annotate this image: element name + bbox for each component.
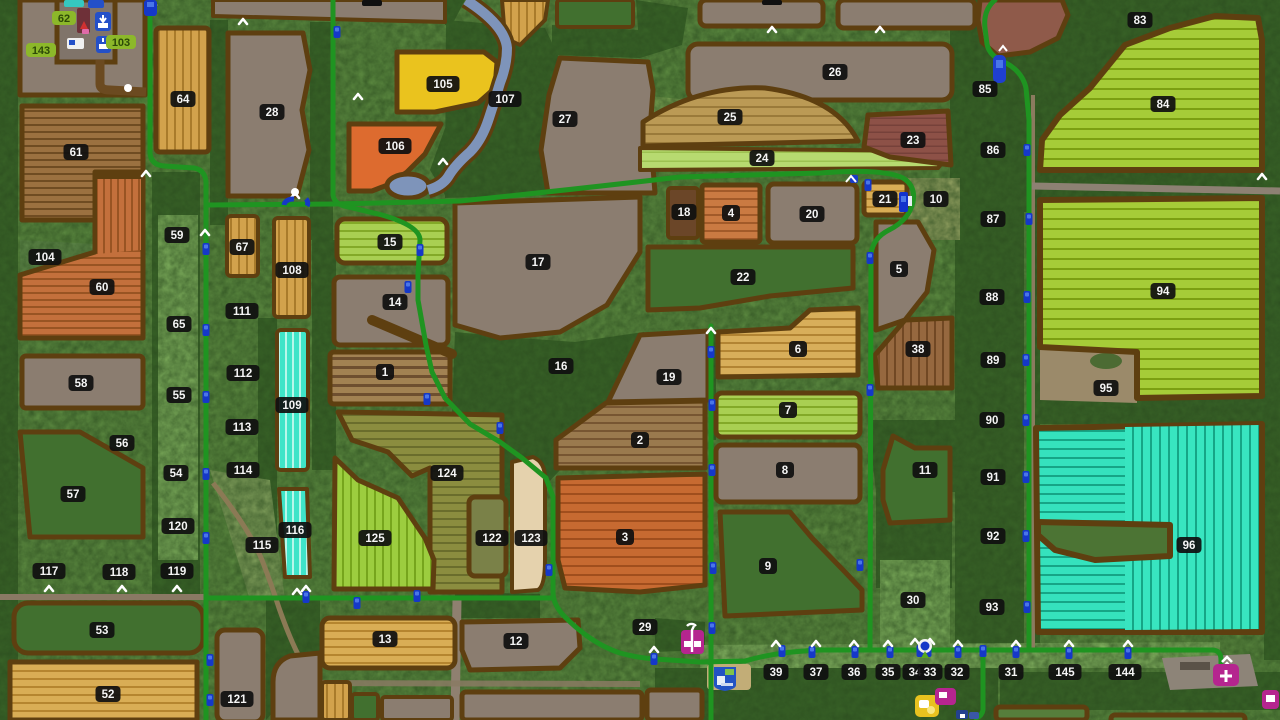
svg-text:59: 59 (171, 230, 184, 242)
svg-text:15: 15 (384, 237, 397, 249)
svg-text:24: 24 (756, 153, 769, 165)
svg-text:106: 106 (385, 141, 404, 153)
svg-text:27: 27 (559, 114, 572, 126)
svg-text:3: 3 (622, 532, 628, 544)
svg-text:86: 86 (987, 145, 1000, 157)
svg-text:52: 52 (102, 689, 115, 701)
svg-text:67: 67 (236, 242, 249, 254)
svg-text:19: 19 (663, 372, 676, 384)
svg-text:1: 1 (382, 367, 389, 379)
svg-text:30: 30 (907, 595, 920, 607)
svg-text:57: 57 (67, 489, 80, 501)
svg-text:35: 35 (882, 667, 895, 679)
svg-text:85: 85 (979, 84, 992, 96)
svg-text:2: 2 (637, 435, 643, 447)
svg-text:65: 65 (173, 319, 186, 331)
svg-text:58: 58 (75, 378, 88, 390)
svg-text:95: 95 (1100, 383, 1113, 395)
svg-text:37: 37 (810, 667, 823, 679)
svg-text:22: 22 (737, 272, 750, 284)
svg-text:88: 88 (986, 292, 999, 304)
svg-text:83: 83 (1134, 15, 1147, 27)
svg-text:53: 53 (96, 625, 109, 637)
svg-text:60: 60 (96, 282, 109, 294)
svg-text:109: 109 (282, 400, 301, 412)
svg-text:118: 118 (110, 567, 129, 579)
svg-text:8: 8 (782, 465, 789, 477)
svg-text:23: 23 (907, 135, 920, 147)
svg-text:93: 93 (986, 602, 999, 614)
svg-text:61: 61 (70, 147, 83, 159)
svg-text:112: 112 (234, 368, 253, 380)
svg-text:96: 96 (1183, 540, 1196, 552)
svg-text:28: 28 (266, 107, 279, 119)
svg-text:14: 14 (389, 297, 402, 309)
svg-text:123: 123 (521, 533, 540, 545)
svg-text:33: 33 (924, 667, 937, 679)
svg-text:38: 38 (912, 344, 925, 356)
svg-text:25: 25 (724, 112, 737, 124)
svg-text:4: 4 (728, 208, 735, 220)
svg-text:55: 55 (173, 390, 186, 402)
svg-text:11: 11 (919, 465, 932, 477)
svg-text:111: 111 (233, 306, 252, 318)
svg-text:13: 13 (379, 634, 392, 646)
svg-text:113: 113 (233, 422, 252, 434)
svg-text:10: 10 (930, 194, 943, 206)
svg-text:94: 94 (1157, 286, 1170, 298)
svg-text:6: 6 (795, 344, 801, 356)
svg-text:117: 117 (40, 566, 59, 578)
svg-text:114: 114 (234, 465, 253, 477)
svg-text:121: 121 (227, 694, 247, 706)
svg-text:84: 84 (1157, 99, 1170, 111)
svg-text:125: 125 (365, 533, 385, 545)
svg-text:89: 89 (987, 355, 1000, 367)
svg-text:29: 29 (639, 622, 652, 634)
svg-text:143: 143 (32, 45, 50, 57)
svg-text:18: 18 (678, 207, 691, 219)
svg-text:120: 120 (168, 521, 187, 533)
svg-text:64: 64 (177, 94, 190, 106)
svg-text:144: 144 (1115, 667, 1135, 679)
svg-text:56: 56 (116, 438, 129, 450)
svg-text:116: 116 (286, 525, 305, 537)
svg-text:31: 31 (1005, 667, 1018, 679)
svg-text:90: 90 (986, 415, 999, 427)
svg-text:36: 36 (848, 667, 861, 679)
svg-text:12: 12 (510, 636, 523, 648)
svg-text:124: 124 (437, 468, 457, 480)
svg-text:108: 108 (282, 265, 302, 277)
svg-text:5: 5 (896, 264, 903, 276)
svg-text:105: 105 (433, 79, 453, 91)
svg-text:103: 103 (112, 37, 130, 49)
svg-text:122: 122 (482, 533, 501, 545)
svg-text:21: 21 (879, 194, 892, 206)
svg-text:104: 104 (35, 252, 55, 264)
svg-text:115: 115 (253, 540, 272, 552)
svg-text:26: 26 (829, 67, 842, 79)
svg-text:39: 39 (770, 667, 783, 679)
svg-text:119: 119 (168, 566, 187, 578)
svg-text:87: 87 (987, 214, 1000, 226)
svg-text:54: 54 (170, 468, 183, 480)
svg-text:20: 20 (806, 209, 819, 221)
svg-text:7: 7 (785, 405, 791, 417)
svg-text:62: 62 (58, 13, 70, 25)
svg-text:16: 16 (555, 361, 568, 373)
svg-text:32: 32 (951, 667, 964, 679)
svg-text:92: 92 (987, 531, 1000, 543)
svg-text:9: 9 (765, 561, 771, 573)
svg-text:107: 107 (495, 94, 514, 106)
svg-text:91: 91 (987, 472, 1000, 484)
svg-text:17: 17 (532, 257, 545, 269)
svg-text:145: 145 (1055, 667, 1075, 679)
